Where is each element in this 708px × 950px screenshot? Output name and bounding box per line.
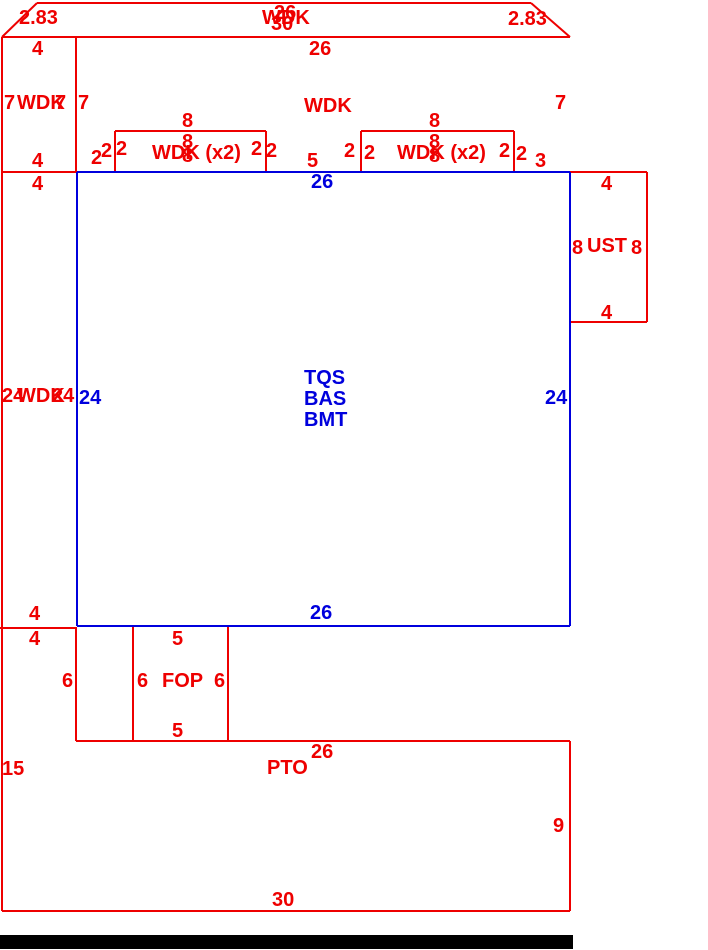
dim-small-deck2-right-outer: 2 — [516, 144, 527, 164]
dim-patio-left-height: 15 — [2, 759, 24, 779]
dim-ust-top-width: 4 — [601, 174, 612, 194]
dim-gap-middle: 5 — [307, 151, 318, 171]
dim-fop-bottom-width: 5 — [172, 721, 183, 741]
dim-small-deck1-right-inner: 2 — [251, 139, 262, 159]
dim-patio-arm-height: 6 — [62, 671, 73, 691]
dim-left-strip-bottom: 4 — [32, 151, 43, 171]
dim-upper-deck-left-height: 7 — [78, 93, 89, 113]
dim-top-deck-lower-width: 30 — [271, 14, 293, 34]
dim-left-strip-top: 4 — [32, 39, 43, 59]
dim-small-deck2-left-inner: 2 — [364, 143, 375, 163]
dim-small-deck1-right-outer: 2 — [266, 141, 277, 161]
dim-small-deck1-left-outer: 2 — [101, 141, 112, 161]
dim-patio-arm-top-width: 4 — [29, 629, 40, 649]
dim-small-deck2-right-inner: 2 — [499, 141, 510, 161]
footer-bar — [0, 935, 573, 949]
dim-left-strip2-right-height: 24 — [52, 386, 74, 406]
dim-left-strip-right-height: 7 — [55, 93, 66, 113]
dim-left-strip-left-height: 7 — [4, 93, 15, 113]
dim-ust-right-height: 8 — [631, 238, 642, 258]
room-label-small-deck2: WDK (x2) — [397, 143, 486, 163]
dim-fop-top-width: 5 — [172, 629, 183, 649]
dim-house-top-width: 26 — [311, 172, 333, 192]
room-label-upper-deck: WDK — [304, 96, 352, 116]
dim-gap-right: 3 — [535, 151, 546, 171]
dim-patio-top-width: 26 — [311, 742, 333, 762]
dim-small-deck1-top-width: 8 — [182, 111, 193, 131]
room-label-ust: UST — [587, 236, 627, 256]
dim-small-deck1-overlap-b: 8 — [182, 146, 193, 166]
dim-house-bottom-width: 26 — [310, 603, 332, 623]
dim-ust-bottom-width: 4 — [601, 303, 612, 323]
dim-small-deck2-top-width: 8 — [429, 111, 440, 131]
room-label-fop: FOP — [162, 671, 203, 691]
dim-upper-deck-width: 26 — [309, 39, 331, 59]
dim-top-right-diagonal: 2.83 — [508, 9, 547, 29]
dim-house-right-height: 24 — [545, 388, 567, 408]
room-label-small-deck1: WDK (x2) — [152, 143, 241, 163]
room-label-bas: BAS — [304, 389, 346, 409]
dim-top-left-diagonal: 2.83 — [19, 8, 58, 28]
sketch-area: 2.8326WDK302.834267WDK77WDK788222WDK (x2… — [0, 0, 708, 950]
dim-small-deck2-overlap-b: 8 — [429, 146, 440, 166]
dim-patio-right-height: 9 — [553, 816, 564, 836]
dim-left-strip2-bottom: 4 — [29, 604, 40, 624]
dim-house-left-height: 24 — [79, 388, 101, 408]
dim-upper-deck-right-height: 7 — [555, 93, 566, 113]
room-label-tqs: TQS — [304, 368, 345, 388]
dim-left-strip2-top: 4 — [32, 174, 43, 194]
dim-fop-right-height: 6 — [214, 671, 225, 691]
room-label-bmt: BMT — [304, 410, 347, 430]
room-label-pto: PTO — [267, 758, 308, 778]
dim-small-deck1-left-inner: 2 — [116, 139, 127, 159]
dim-patio-bottom-width: 30 — [272, 890, 294, 910]
dim-fop-left-height: 6 — [137, 671, 148, 691]
dim-ust-left-height: 8 — [572, 238, 583, 258]
dim-small-deck2-left-outer: 2 — [344, 141, 355, 161]
